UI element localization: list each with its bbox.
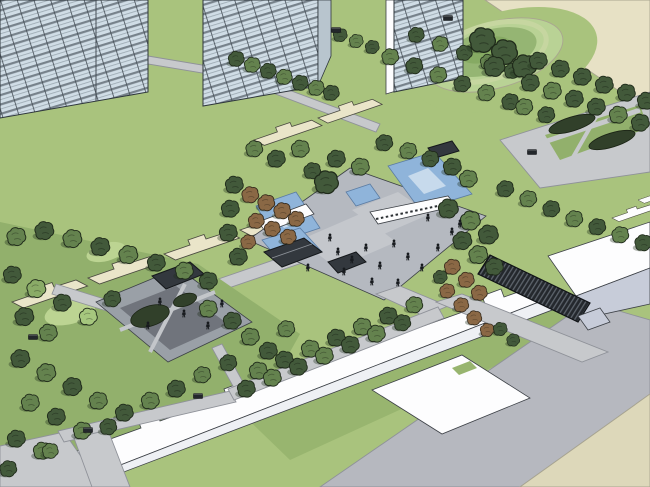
bench	[332, 28, 341, 33]
bench	[444, 16, 453, 21]
bench	[29, 335, 38, 340]
tower-3-facade	[394, 0, 463, 92]
bench	[194, 394, 203, 399]
scene-svg	[0, 0, 650, 487]
site-plan-render	[0, 0, 650, 487]
bench	[84, 428, 93, 433]
bench	[528, 150, 537, 155]
